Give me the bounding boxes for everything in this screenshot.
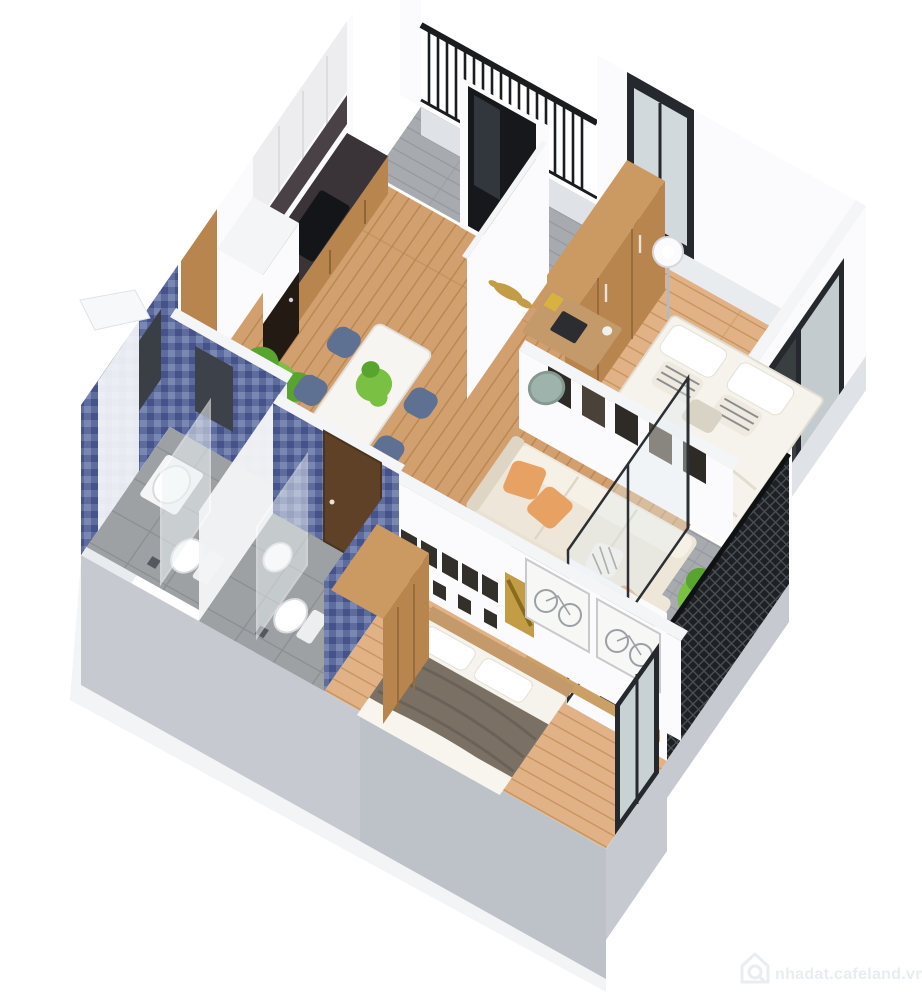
ne-left-column [400,0,421,107]
floorplan-render: nhadat.cafeland.vn [0,0,922,1000]
watermark: nhadat.cafeland.vn [742,954,922,983]
watermark-text: nhadat.cafeland.vn [775,966,922,983]
house-search-icon [742,954,768,982]
door-handle [330,500,335,505]
fridge-handle [289,298,293,302]
page: { "image": { "kind": "3d-isometric-floor… [0,0,922,1000]
